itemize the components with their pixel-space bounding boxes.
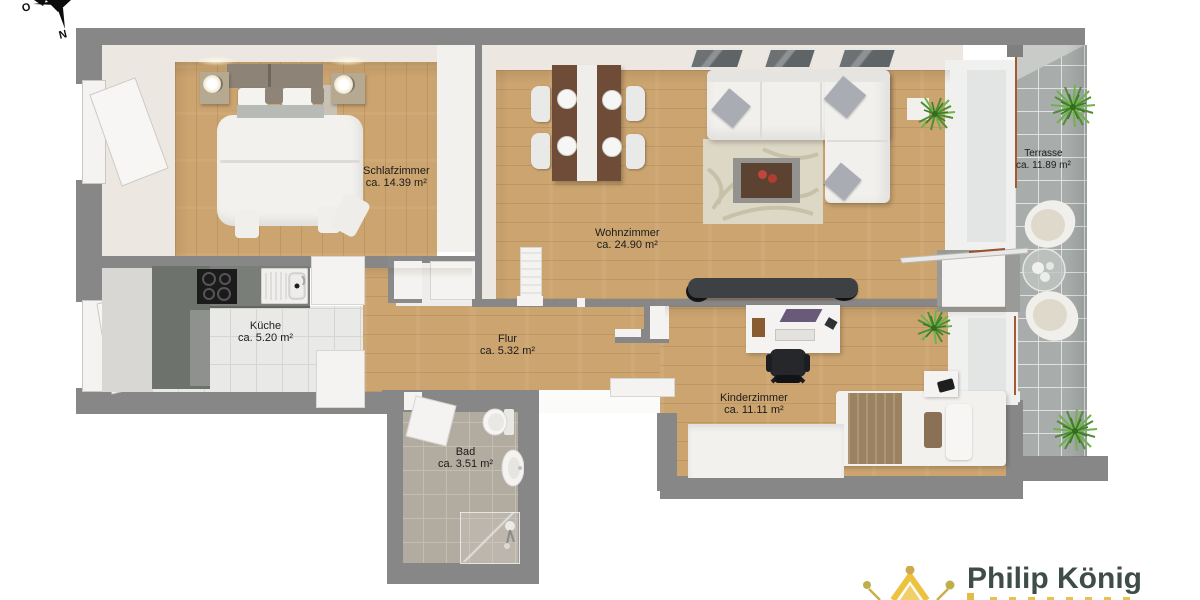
svg-text:N: N: [58, 28, 69, 42]
svg-text:O: O: [21, 1, 33, 15]
